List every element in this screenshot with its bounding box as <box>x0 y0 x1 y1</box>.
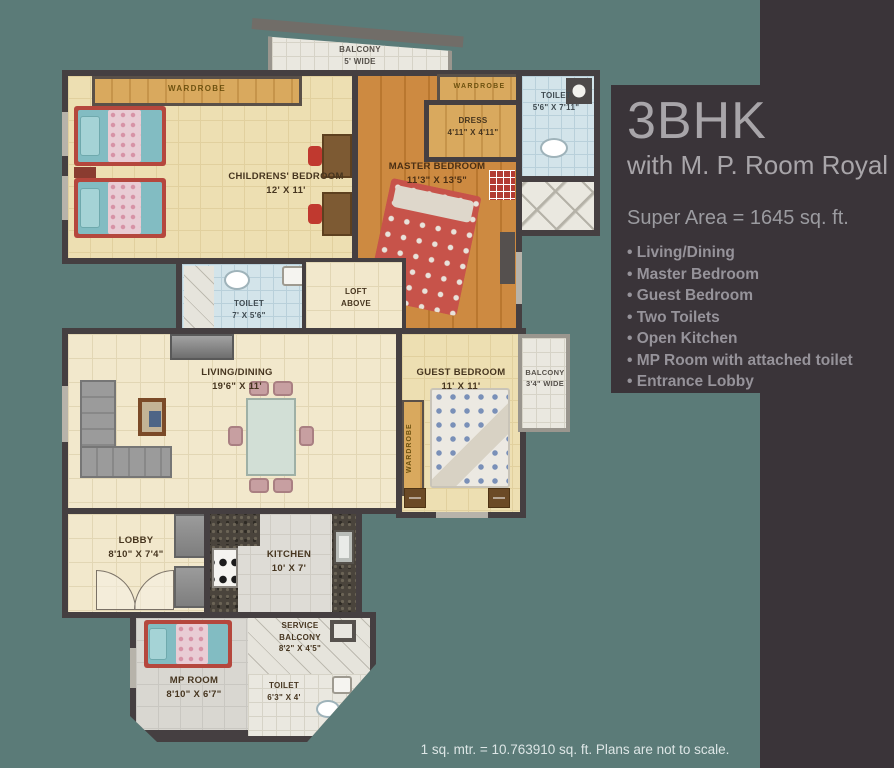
room-label-childrens-bedroom: CHILDRENS' BEDROOM 12' X 11' <box>228 170 343 198</box>
single-bed <box>74 178 166 238</box>
window <box>130 648 136 688</box>
washbasin <box>332 676 352 694</box>
room-label-dress: DRESS 4'11" X 4'11" <box>448 115 499 138</box>
window <box>436 512 488 518</box>
washing-machine <box>330 620 356 642</box>
wardrobe-label: WARDROBE <box>406 410 413 486</box>
kitchen-counter <box>332 514 356 614</box>
single-bed <box>144 620 232 668</box>
wc-fixture <box>540 138 568 158</box>
feature-item: Guest Bedroom <box>627 285 894 307</box>
wc-fixture <box>316 700 340 718</box>
room-name: WARDROBE <box>406 423 413 473</box>
dining-chair <box>249 478 269 493</box>
wc-fixture <box>224 270 250 290</box>
rug <box>489 170 515 200</box>
study-desk <box>322 192 352 236</box>
room-dim: 5'6" X 7'11" <box>533 102 580 114</box>
window <box>62 386 68 442</box>
kitchen-counter <box>210 514 260 546</box>
nightstand <box>404 488 426 508</box>
dining-chair <box>273 381 293 396</box>
room-dim: 6'3" X 4' <box>267 692 300 704</box>
room-label-lobby: LOBBY 8'10" X 7'4" <box>108 534 163 562</box>
room-dim: 8'10" X 6'7" <box>166 688 221 702</box>
room-name: BALCONY <box>339 44 381 56</box>
wardrobe-label: WARDROBE <box>437 83 522 90</box>
info-panel: 3BHK with M. P. Room Royal Super Area = … <box>611 85 894 393</box>
feature-item: Living/Dining <box>627 242 894 264</box>
room-dim: 7' X 5'6" <box>232 310 265 322</box>
feature-item: MP Room with attached toilet <box>627 350 894 372</box>
room-label-living-dining: LIVING/DINING 19'6" X 11' <box>201 366 272 394</box>
dining-chair <box>299 426 314 446</box>
desk-chair <box>308 204 322 224</box>
floor-plan-page: 3BHK with M. P. Room Royal Super Area = … <box>0 0 894 768</box>
room-name: KITCHEN <box>267 548 311 562</box>
shoe-cabinet <box>174 514 206 558</box>
nightstand <box>74 167 96 178</box>
room-dim: 4'11" X 4'11" <box>448 127 499 139</box>
dining-chair <box>273 478 293 493</box>
feature-item: Entrance Lobby <box>627 371 894 393</box>
single-bed <box>74 106 166 166</box>
window <box>516 252 522 304</box>
room-name: LIVING/DINING <box>201 366 272 380</box>
room-label-service-balcony: SERVICE BALCONY 8'2" X 4'5" <box>267 620 333 655</box>
room-label-master-bedroom: MASTER BEDROOM 11'3" X 13'5" <box>389 160 486 188</box>
room-name: MASTER BEDROOM <box>389 160 486 174</box>
super-area-text: Super Area = 1645 sq. ft. <box>627 207 894 230</box>
shoe-cabinet <box>174 566 206 608</box>
room-label-toilet-top: TOILET 5'6" X 7'11" <box>533 90 580 113</box>
room-dim: 10' X 7' <box>267 562 311 576</box>
room-name: TOILET <box>533 90 580 102</box>
room-dim: 8'10" X 7'4" <box>108 548 163 562</box>
nightstand <box>488 488 510 508</box>
room-name: WARDROBE <box>168 84 226 93</box>
room-dim: 3'4" WIDE <box>523 379 567 390</box>
scale-note: 1 sq. mtr. = 10.763910 sq. ft. Plans are… <box>400 742 750 757</box>
feature-list: Living/Dining Master Bedroom Guest Bedro… <box>627 242 894 393</box>
room-name: LOFT ABOVE <box>333 286 379 309</box>
sofa <box>80 446 172 478</box>
plan-subtitle: with M. P. Room Royal <box>627 150 894 181</box>
room-name: CHILDRENS' BEDROOM <box>228 170 343 184</box>
room-label-loft: LOFT ABOVE <box>333 286 379 309</box>
room-label-guest-bedroom: GUEST BEDROOM 11' X 11' <box>417 366 506 394</box>
feature-item: Master Bedroom <box>627 264 894 286</box>
room-dim: 19'6" X 11' <box>201 380 272 394</box>
window <box>62 112 68 156</box>
room-dim: 11'3" X 13'5" <box>389 174 486 188</box>
room-name: LOBBY <box>108 534 163 548</box>
room-name: TOILET <box>232 298 265 310</box>
feature-item: Two Toilets <box>627 307 894 329</box>
room-dim: 5' WIDE <box>339 56 381 68</box>
room-label-toilet-bottom: TOILET 6'3" X 4' <box>267 680 300 703</box>
wardrobe-label: WARDROBE <box>92 84 302 93</box>
room-label-mp-room: MP ROOM 8'10" X 6'7" <box>166 674 221 702</box>
rug <box>138 398 166 436</box>
room-label-kitchen: KITCHEN 10' X 7' <box>267 548 311 576</box>
tv-unit <box>170 334 234 360</box>
room-label-toilet-mid: TOILET 7' X 5'6" <box>232 298 265 321</box>
room-label-balcony-right: BALCONY 3'4" WIDE <box>523 368 567 390</box>
gas-stove <box>212 548 238 588</box>
room-name: DRESS <box>448 115 499 127</box>
kitchen-sink <box>334 530 354 564</box>
dining-table <box>246 398 296 476</box>
room-name: TOILET <box>267 680 300 692</box>
dining-chair <box>228 426 243 446</box>
feature-item: Open Kitchen <box>627 328 894 350</box>
bottom-block: MP ROOM 8'10" X 6'7" SERVICE BALCONY 8'2… <box>130 612 376 742</box>
dresser <box>500 232 515 284</box>
desk-chair <box>308 146 322 166</box>
room-name: MP ROOM <box>166 674 221 688</box>
room-label-balcony-top: BALCONY 5' WIDE <box>339 44 381 67</box>
duct-area <box>516 176 600 236</box>
room-dim: 12' X 11' <box>228 184 343 198</box>
double-bed <box>430 388 510 488</box>
room-dim: 11' X 11' <box>417 380 506 394</box>
room-name: SERVICE BALCONY <box>267 620 333 643</box>
room-name: BALCONY <box>523 368 567 379</box>
plan-title: 3BHK <box>627 95 894 147</box>
room-name: WARDROBE <box>453 83 505 90</box>
room-dim: 8'2" X 4'5" <box>267 643 333 655</box>
window <box>62 176 68 220</box>
room-name: GUEST BEDROOM <box>417 366 506 380</box>
